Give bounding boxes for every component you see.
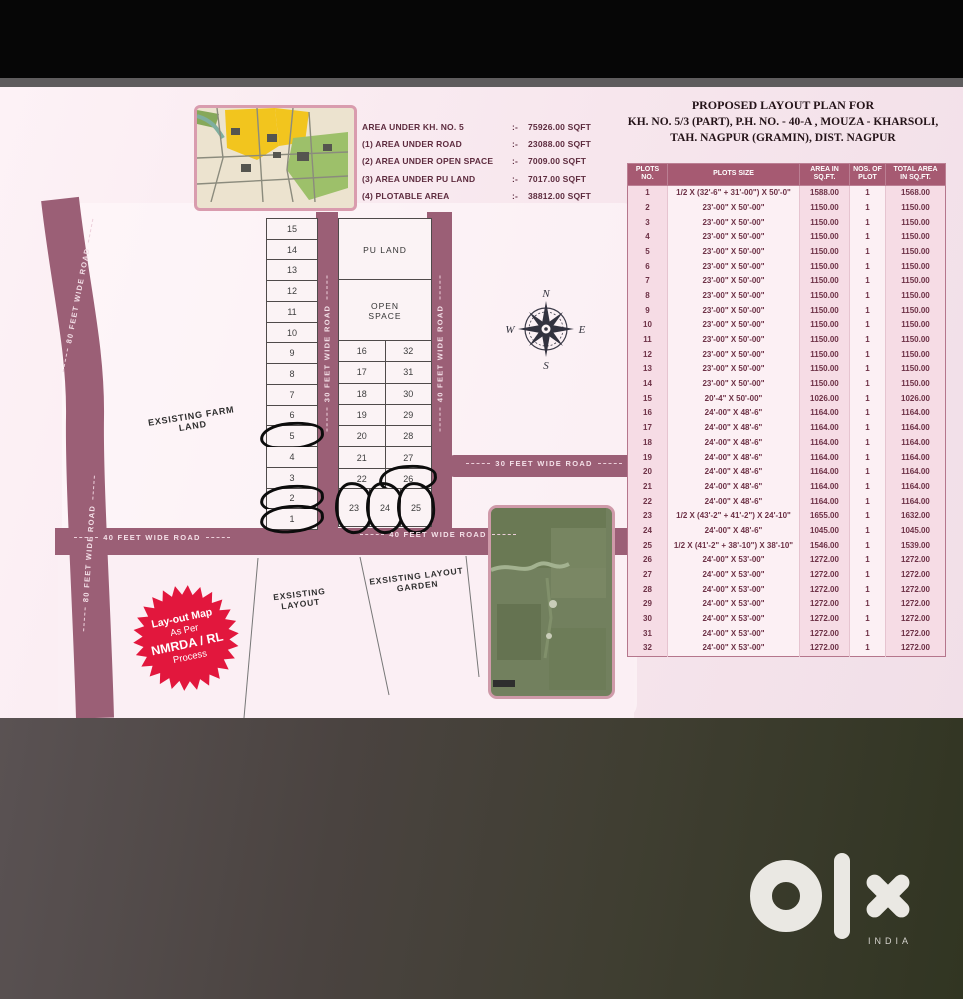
col-header-area: AREA IN SQ.FT. [800,164,850,186]
plot-cell-19: 19 [339,405,385,425]
compass-s: S [543,360,549,371]
olx-x-glyph [863,871,912,920]
plot-cell-4: 4 [267,447,317,467]
left-plot-column: 151413121110987654321 [266,218,318,530]
road-dash [440,276,441,300]
pu-land-box: PU LAND [338,218,432,281]
legend-value: 38812.00 SQFT [528,191,618,201]
table-row: 323'-00" X 50'-00"1150.0011150.00 [628,215,946,230]
plot-cell-6: 6 [267,406,317,426]
table-row: 1323'-00" X 50'-00"1150.0011150.00 [628,362,946,377]
road-dash [74,537,98,538]
road-label-40ft-right: 40 FEET WIDE ROAD [348,530,528,539]
table-row: 623'-00" X 50'-00"1150.0011150.00 [628,259,946,274]
table-row: 2624'-00" X 53'-00"1272.0011272.00 [628,553,946,568]
table-row: 231/2 X (43'-2" + 41'-2") X 24'-10"1655.… [628,509,946,524]
road-label-30ft-vertical: 30 FEET WIDE ROAD [323,274,332,434]
col-header-total: TOTAL AREA IN SQ.FT. [886,164,946,186]
bottom-plot-row: 232425 [338,488,432,527]
screenshot-root: 80 FEET WIDE ROAD 80 FEET WIDE ROAD 30 F… [0,0,963,999]
compass-e: E [578,324,586,336]
plot-cell-28: 28 [386,426,432,446]
table-row: 923'-00" X 50'-00"1150.0011150.00 [628,303,946,318]
table-row: 1123'-00" X 50'-00"1150.0011150.00 [628,333,946,348]
top-letterbox-bar [0,0,963,78]
plot-cell-32: 32 [386,341,432,361]
plot-cell-31: 31 [386,362,432,382]
road-dash [206,537,230,538]
table-row: 2024'-00" X 48'-6"1164.0011164.00 [628,465,946,480]
title-line: KH. NO. 5/3 (PART), P.H. NO. - 40-A , MO… [620,114,946,130]
plots-table: PLOTS NO. PLOTS SIZE AREA IN SQ.FT. NOS.… [627,163,945,657]
plot-cell-9: 9 [267,343,317,363]
title-line: TAH. NAGPUR (GRAMIN), DIST. NAGPUR [620,130,946,146]
layout-plan-image: 80 FEET WIDE ROAD 80 FEET WIDE ROAD 30 F… [0,87,963,718]
road-dash [492,534,516,535]
table-row: 2424'-00" X 48'-6"1045.0011045.00 [628,524,946,539]
table-row: 223'-00" X 50'-00"1150.0011150.00 [628,200,946,215]
col-header-nos: NOS. OF PLOT [850,164,886,186]
road-dash [598,463,622,464]
table-row: 1520'-4" X 50'-00"1026.0011026.00 [628,391,946,406]
plot-cell-18: 18 [339,384,385,404]
plot-cell-10: 10 [267,323,317,343]
table-row: 1924'-00" X 48'-6"1164.0011164.00 [628,450,946,465]
plot-cell-24: 24 [370,489,400,526]
road-dash [327,276,328,300]
legend-label: (4) PLOTABLE AREA [362,191,512,201]
road-dash [327,407,328,431]
table-row: 1223'-00" X 50'-00"1150.0011150.00 [628,347,946,362]
table-row: 1423'-00" X 50'-00"1150.0011150.00 [628,377,946,392]
legend-row: (2) AREA UNDER OPEN SPACE:-7009.00 SQFT [362,153,618,170]
compass-rose-icon: N E S W [504,287,588,371]
page-title: PROPOSED LAYOUT PLAN FOR KH. NO. 5/3 (PA… [620,97,946,146]
table-row: 2224'-00" X 48'-6"1164.0011164.00 [628,494,946,509]
area-legend: AREA UNDER KH. NO. 5:-75926.00 SQFT(1) A… [362,118,618,205]
table-row: 3224'-00" X 53'-00"1272.0011272.00 [628,641,946,656]
legend-value: 7017.00 SQFT [528,174,618,184]
olx-logo: INDIA [742,852,932,952]
legend-separator: :- [512,122,528,132]
table-row: 11/2 X (32'-6" + 31'-00") X 50'-0"1588.0… [628,185,946,200]
olx-india-label: INDIA [868,936,912,946]
legend-row: (3) AREA UNDER PU LAND:-7017.00 SQFT [362,170,618,187]
title-line: PROPOSED LAYOUT PLAN FOR [620,97,946,114]
table-row: 1023'-00" X 50'-00"1150.0011150.00 [628,318,946,333]
legend-row: AREA UNDER KH. NO. 5:-75926.00 SQFT [362,118,618,135]
road-dash [88,219,94,243]
olx-o-glyph [761,871,811,921]
plot-cell-20: 20 [339,426,385,446]
plot-cell-16: 16 [339,341,385,361]
table-row: 2924'-00" X 53'-00"1272.0011272.00 [628,597,946,612]
table-row: 2124'-00" X 48'-6"1164.0011164.00 [628,480,946,495]
plot-cell-25: 25 [401,489,431,526]
plot-cell-29: 29 [386,405,432,425]
plot-cell-13: 13 [267,260,317,280]
legend-value: 7009.00 SQFT [528,156,618,166]
col-header-plots-size: PLOTS SIZE [668,164,800,186]
plot-cell-23: 23 [339,489,369,526]
road-dash [83,607,86,631]
road-label-40ft-vertical: 40 FEET WIDE ROAD [436,274,445,434]
table-row: 2824'-00" X 53'-00"1272.0011272.00 [628,582,946,597]
plot-cell-14: 14 [267,240,317,260]
bottom-letterbox-band: INDIA [0,718,963,999]
col-header-plots-no: PLOTS NO. [628,164,668,186]
compass-n: N [541,288,550,300]
legend-row: (1) AREA UNDER ROAD:-23088.00 SQFT [362,135,618,152]
table-row: 523'-00" X 50'-00"1150.0011150.00 [628,245,946,260]
plot-cell-7: 7 [267,385,317,405]
compass-w: W [505,324,515,336]
plot-cell-1: 1 [267,509,317,529]
plot-cell-17: 17 [339,362,385,382]
road-dash [466,463,490,464]
open-space-box: OPEN SPACE [338,279,432,342]
table-row: 1824'-00" X 48'-6"1164.0011164.00 [628,435,946,450]
legend-separator: :- [512,191,528,201]
plot-cell-26: 26 [386,469,432,489]
table-row: 823'-00" X 50'-00"1150.0011150.00 [628,289,946,304]
legend-separator: :- [512,139,528,149]
table-row: 1624'-00" X 48'-6"1164.0011164.00 [628,406,946,421]
table-header-row: PLOTS NO. PLOTS SIZE AREA IN SQ.FT. NOS.… [628,164,946,186]
road-dash [92,476,95,500]
legend-label: AREA UNDER KH. NO. 5 [362,122,512,132]
plot-cell-2: 2 [267,489,317,509]
plots-table-body: 11/2 X (32'-6" + 31'-00") X 50'-0"1588.0… [628,185,946,656]
legend-label: (1) AREA UNDER ROAD [362,139,512,149]
road-dash [360,534,384,535]
legend-value: 23088.00 SQFT [528,139,618,149]
road-dash [63,348,69,372]
road-dash [440,407,441,431]
satellite-credit-tag [493,680,515,687]
middle-plot-grid: 1632173118301929202821272226 [338,340,432,490]
plot-cell-5: 5 [267,426,317,446]
legend-separator: :- [512,156,528,166]
table-row: 723'-00" X 50'-00"1150.0011150.00 [628,274,946,289]
plot-cell-12: 12 [267,281,317,301]
top-gray-strip [0,78,963,87]
table-row: 3124'-00" X 53'-00"1272.0011272.00 [628,626,946,641]
road-label-40ft-left: 40 FEET WIDE ROAD [62,533,242,542]
plot-cell-3: 3 [267,468,317,488]
plot-cell-8: 8 [267,364,317,384]
plot-cell-11: 11 [267,302,317,322]
legend-label: (2) AREA UNDER OPEN SPACE [362,156,512,166]
legend-row: (4) PLOTABLE AREA:-38812.00 SQFT [362,188,618,205]
location-thumbnail-map [194,105,357,211]
plot-cell-21: 21 [339,447,385,467]
olx-bar-glyph [834,853,850,939]
plot-cell-27: 27 [386,447,432,467]
table-row: 1724'-00" X 48'-6"1164.0011164.00 [628,421,946,436]
legend-separator: :- [512,174,528,184]
table-row: 3024'-00" X 53'-00"1272.0011272.00 [628,612,946,627]
legend-value: 75926.00 SQFT [528,122,618,132]
table-row: 423'-00" X 50'-00"1150.0011150.00 [628,230,946,245]
table-row: 251/2 X (41'-2" + 38'-10") X 38'-10"1546… [628,538,946,553]
road-label-30ft-stub: 30 FEET WIDE ROAD [462,459,626,468]
table-row: 2724'-00" X 53'-00"1272.0011272.00 [628,568,946,583]
plot-cell-22: 22 [339,469,385,489]
plot-cell-30: 30 [386,384,432,404]
legend-label: (3) AREA UNDER PU LAND [362,174,512,184]
plot-cell-15: 15 [267,219,317,239]
